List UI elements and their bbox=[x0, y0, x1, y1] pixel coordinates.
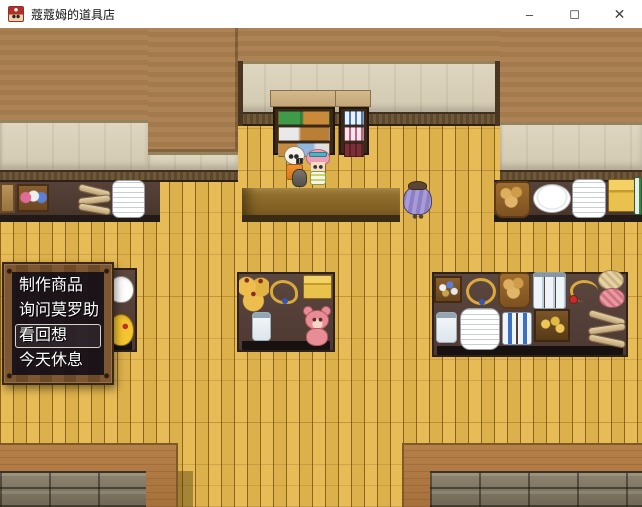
alcove-left-edge bbox=[238, 61, 243, 126]
ceiling-left bbox=[0, 28, 148, 120]
ceiling-right bbox=[500, 28, 642, 122]
customer-face bbox=[311, 162, 325, 171]
coin-box-item bbox=[534, 309, 570, 342]
ghost-cap bbox=[408, 181, 427, 190]
menu-item[interactable]: 询问莫罗助 bbox=[15, 299, 101, 323]
minimize-icon: – bbox=[526, 7, 533, 22]
green-bottles-item bbox=[634, 177, 642, 215]
large-plate-item bbox=[533, 184, 571, 213]
customer-character[interactable] bbox=[306, 149, 331, 189]
scroll-bundle-item bbox=[78, 183, 111, 216]
minimize-button[interactable]: – bbox=[507, 0, 552, 28]
plate-stack-item bbox=[572, 179, 606, 218]
ghost-npc[interactable] bbox=[403, 181, 432, 219]
wall-left bbox=[0, 120, 148, 170]
wall-left-step bbox=[148, 152, 238, 170]
menu-item[interactable]: 今天休息 bbox=[15, 349, 101, 373]
white-jar-item bbox=[252, 312, 271, 341]
shopkeeper-character[interactable] bbox=[281, 146, 308, 189]
gold-box-item bbox=[303, 275, 332, 299]
app-window: 蔻蔻姆的道具店 – ◻ ✕ bbox=[0, 0, 642, 507]
blue-jars-item bbox=[502, 312, 532, 345]
maximize-button[interactable]: ◻ bbox=[552, 0, 597, 28]
shop-counter bbox=[242, 188, 400, 215]
close-button[interactable]: ✕ bbox=[597, 0, 642, 28]
ghost-feet bbox=[412, 214, 424, 219]
gold-necklace-item bbox=[466, 278, 496, 305]
plate-stack-item bbox=[112, 180, 145, 218]
teddy-bear-item bbox=[301, 305, 334, 349]
stone-wall-left bbox=[0, 471, 146, 507]
plate-stack-item bbox=[460, 308, 500, 350]
command-menu-list: 制作商品 询问莫罗助 看回想 今天休息 bbox=[12, 272, 104, 375]
doorway-shadow bbox=[178, 471, 193, 507]
small-bottle-item bbox=[436, 312, 457, 343]
ore-box-item bbox=[434, 276, 462, 303]
shelf-top bbox=[335, 90, 371, 107]
money-bags-item bbox=[239, 275, 269, 313]
shopkeeper-sack bbox=[292, 169, 307, 187]
window-title: 蔻蔻姆的道具店 bbox=[31, 6, 507, 23]
customer-body bbox=[310, 171, 326, 185]
maximize-icon: ◻ bbox=[569, 6, 580, 22]
ghost-body bbox=[403, 186, 432, 215]
game-viewport[interactable]: 制作商品 询问莫罗助 看回想 今天休息 bbox=[0, 28, 642, 507]
customer-goggles bbox=[309, 152, 327, 157]
yarn-rolls-item bbox=[596, 270, 628, 310]
gold-chest-item bbox=[608, 179, 637, 212]
menu-item[interactable]: 制作商品 bbox=[15, 274, 101, 298]
wall-right bbox=[500, 122, 642, 170]
shelf-top bbox=[270, 90, 338, 107]
necklace-item bbox=[270, 280, 298, 304]
command-menu-window: 制作商品 询问莫罗助 看回想 今天休息 bbox=[2, 262, 114, 385]
bread-basket-item bbox=[494, 181, 531, 218]
titlebar: 蔻蔻姆的道具店 – ◻ ✕ bbox=[0, 0, 642, 28]
shop-counter-front bbox=[242, 215, 400, 222]
bottle-shelf bbox=[339, 107, 369, 155]
close-icon: ✕ bbox=[614, 6, 626, 23]
yarn-box-item bbox=[17, 184, 49, 212]
menu-item[interactable]: 看回想 bbox=[15, 324, 101, 348]
crate-item bbox=[0, 183, 15, 213]
stone-wall-right bbox=[430, 471, 642, 507]
app-icon bbox=[8, 6, 24, 22]
gem-chain-item bbox=[570, 280, 598, 302]
ceiling-alcove bbox=[238, 28, 500, 61]
bread-basket-item bbox=[498, 272, 531, 309]
ceiling-left-step bbox=[148, 28, 238, 152]
glass-jars-item bbox=[533, 272, 566, 309]
scroll-bundle-item bbox=[588, 308, 626, 352]
